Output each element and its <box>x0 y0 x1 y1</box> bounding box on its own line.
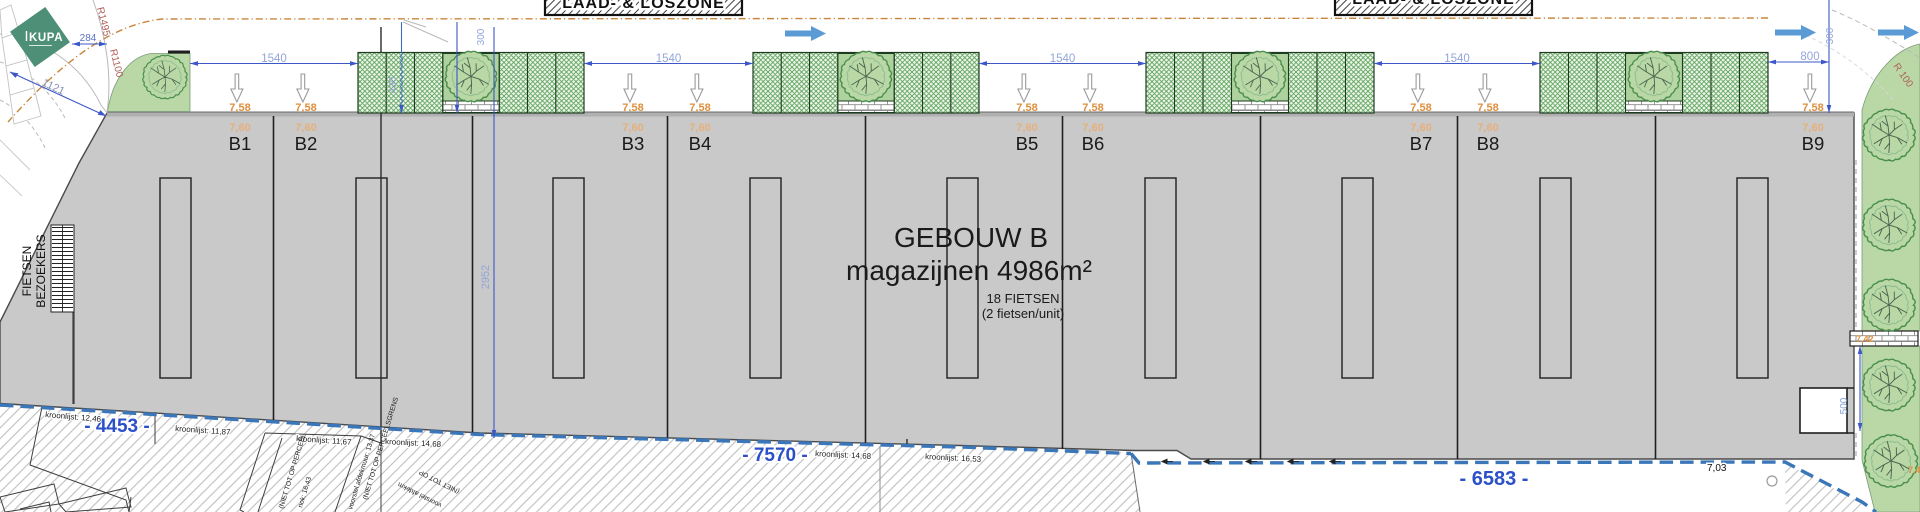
svg-text:KUPA: KUPA <box>29 32 63 44</box>
svg-text:300: 300 <box>476 28 487 45</box>
svg-text:GEBOUW B: GEBOUW B <box>894 222 1048 253</box>
svg-text:BEZOEKERS: BEZOEKERS <box>34 234 48 307</box>
svg-text:430: 430 <box>388 76 399 93</box>
svg-text:- 6583 -: - 6583 - <box>1460 468 1529 490</box>
svg-text:7,58: 7,58 <box>689 102 710 114</box>
svg-text:284: 284 <box>80 33 97 44</box>
svg-text:1540: 1540 <box>656 53 682 65</box>
svg-text:7,58: 7,58 <box>1410 102 1431 114</box>
svg-text:7,58: 7,58 <box>1016 102 1037 114</box>
svg-text:7,42: 7,42 <box>1856 334 1874 344</box>
svg-text:500: 500 <box>1839 397 1850 414</box>
svg-text:7,58: 7,58 <box>295 102 316 114</box>
svg-text:300: 300 <box>1825 27 1836 44</box>
svg-text:- 7570 -: - 7570 - <box>742 445 807 466</box>
svg-text:7,58: 7,58 <box>229 102 250 114</box>
svg-text:B9: B9 <box>1802 133 1825 154</box>
svg-text:7,58: 7,58 <box>622 102 643 114</box>
svg-text:1540: 1540 <box>1050 53 1076 65</box>
svg-text:magazijnen 4986m²: magazijnen 4986m² <box>846 255 1092 286</box>
svg-text:B5: B5 <box>1016 133 1039 154</box>
svg-text:2952: 2952 <box>480 265 492 289</box>
svg-text:B2: B2 <box>295 133 318 154</box>
svg-text:7,4: 7,4 <box>1908 465 1920 475</box>
svg-text:FIETSEN: FIETSEN <box>20 246 34 297</box>
svg-text:B8: B8 <box>1477 133 1500 154</box>
svg-text:B4: B4 <box>689 133 712 154</box>
svg-text:7,58: 7,58 <box>1477 102 1498 114</box>
svg-text:LAAD- & LOSZONE: LAAD- & LOSZONE <box>1352 0 1515 8</box>
svg-text:B6: B6 <box>1082 133 1105 154</box>
svg-text:1540: 1540 <box>1444 53 1470 65</box>
svg-text:7,58: 7,58 <box>1082 102 1103 114</box>
svg-text:LAAD- & LOSZONE: LAAD- & LOSZONE <box>562 0 725 12</box>
svg-text:7,58: 7,58 <box>1802 102 1823 114</box>
svg-text:800: 800 <box>1800 51 1819 63</box>
svg-text:(2 fietsen/unit): (2 fietsen/unit) <box>982 306 1064 321</box>
svg-text:B3: B3 <box>622 133 645 154</box>
svg-text:B7: B7 <box>1410 133 1433 154</box>
svg-text:7,03: 7,03 <box>1707 463 1727 474</box>
svg-text:B1: B1 <box>229 133 252 154</box>
svg-text:18 FIETSEN: 18 FIETSEN <box>987 291 1060 306</box>
svg-text:1540: 1540 <box>261 53 287 65</box>
